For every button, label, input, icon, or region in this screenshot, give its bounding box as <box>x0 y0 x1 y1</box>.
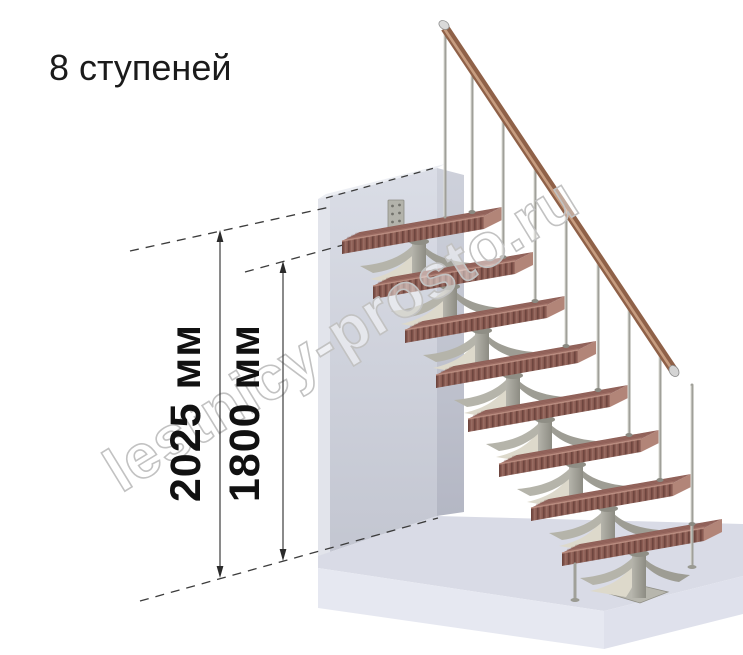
dimension-label-total: 2025 мм <box>162 324 210 502</box>
dimension-label-top-step: 1800 мм <box>221 324 269 502</box>
diagram-canvas: lestnicy-prosto.ru 2025 мм 1800 мм 8 сту… <box>0 0 743 655</box>
upper-floor-dashed-line <box>130 207 330 251</box>
arrow-down-icon <box>217 566 224 578</box>
arrow-down-icon <box>280 549 287 561</box>
page-title: 8 ступеней <box>49 47 231 88</box>
staircase-dimension-diagram: lestnicy-prosto.ru 2025 мм 1800 мм 8 сту… <box>0 0 743 655</box>
arrow-up-icon <box>217 230 224 242</box>
